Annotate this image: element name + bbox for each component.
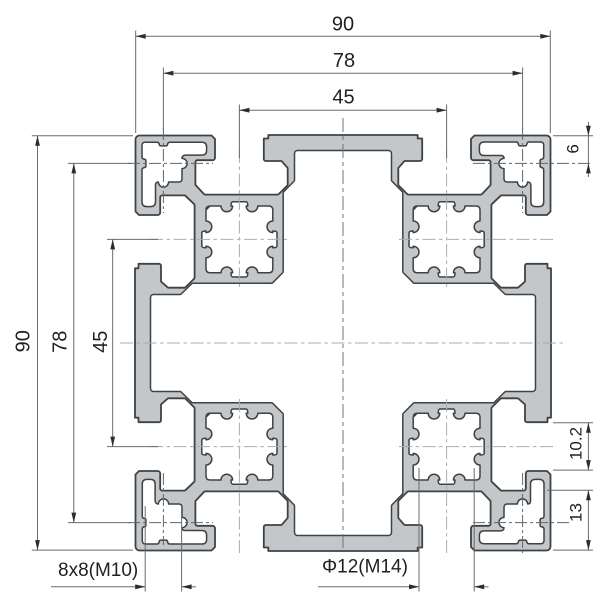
svg-text:13: 13 bbox=[567, 503, 586, 522]
svg-text:90: 90 bbox=[13, 330, 35, 352]
svg-text:8x8(M10): 8x8(M10) bbox=[58, 560, 138, 581]
svg-text:45: 45 bbox=[332, 87, 354, 109]
svg-text:78: 78 bbox=[50, 331, 72, 353]
svg-text:90: 90 bbox=[332, 14, 354, 36]
svg-text:Φ12(M14): Φ12(M14) bbox=[322, 557, 408, 578]
svg-text:78: 78 bbox=[333, 50, 355, 72]
svg-text:10.2: 10.2 bbox=[567, 427, 586, 460]
svg-text:45: 45 bbox=[90, 331, 112, 353]
svg-text:6: 6 bbox=[564, 144, 583, 153]
